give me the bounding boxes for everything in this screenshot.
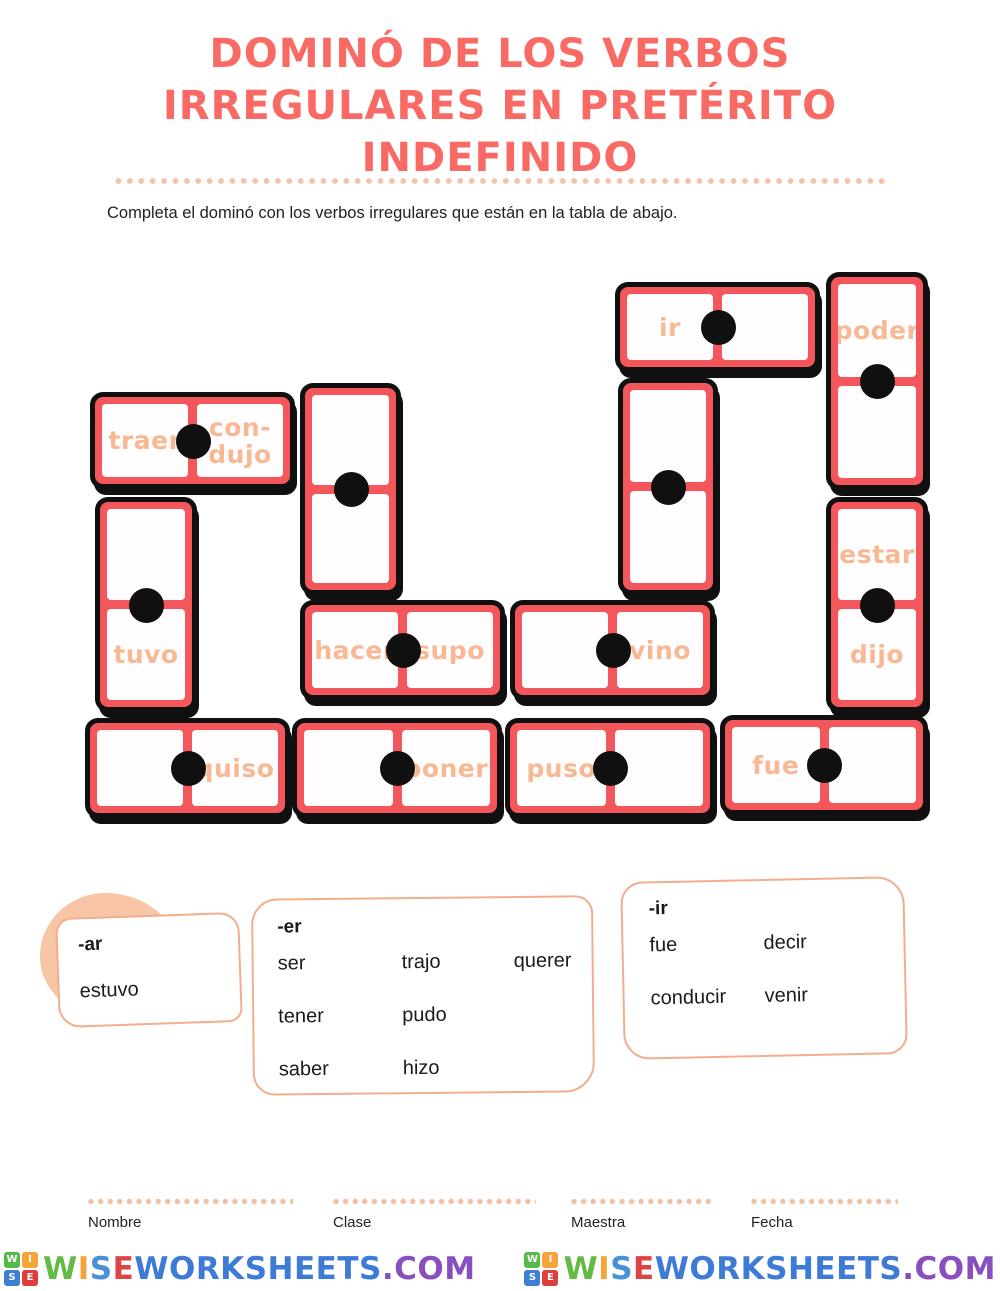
- bank-label: -er: [277, 913, 567, 938]
- domino-verb: supo: [415, 637, 485, 664]
- domino-pip: [176, 424, 211, 459]
- brand-letter-segment: WORKSHEETS: [655, 1251, 903, 1287]
- domino-verb: dijo: [850, 641, 904, 668]
- word-bank-word: conducir: [650, 985, 764, 1010]
- brand-grid-cell: S: [524, 1270, 540, 1286]
- bank-label: -ir: [649, 894, 877, 921]
- word-bank-word: saber: [279, 1057, 403, 1081]
- word-bank-word: venir: [764, 983, 878, 1008]
- page-title-line: DOMINÓ DE LOS VERBOS: [0, 28, 1000, 80]
- brand-grid-cell: E: [542, 1270, 558, 1286]
- domino-verb: quiso: [196, 755, 275, 782]
- domino-pip: [380, 751, 415, 786]
- answer-slot[interactable]: [630, 491, 706, 583]
- domino-verb: poner: [403, 755, 488, 782]
- field-label: Nombre: [88, 1214, 293, 1231]
- domino-half-verb: dijo: [838, 609, 916, 700]
- dotted-line: [333, 1198, 536, 1205]
- word-bank-word: estuvo: [79, 976, 220, 1004]
- field-label: Clase: [333, 1214, 536, 1231]
- domino-half-verb: tuvo: [107, 609, 185, 700]
- word-bank-spacer: [514, 1002, 572, 1026]
- word-bank-word: ser: [278, 951, 402, 975]
- footer-logo-row: WISEWISEWORKSHEETS.COM WISEWISEWORKSHEET…: [0, 1246, 1000, 1291]
- word-bank-er: -er ser trajo querer tener pudo saber hi…: [251, 895, 595, 1096]
- domino-verb: fue: [752, 752, 799, 779]
- brand-letter-segment: W: [563, 1251, 598, 1287]
- domino-poder-blank: poder: [826, 272, 928, 490]
- brand-grid-cell: S: [4, 1270, 20, 1286]
- word-bank-word: tener: [278, 1004, 402, 1028]
- brand-grid-cell: I: [22, 1252, 38, 1268]
- domino-verb: tuvo: [113, 641, 178, 668]
- answer-slot[interactable]: [630, 390, 706, 482]
- domino-puso-blank: puso: [505, 718, 715, 818]
- domino-blank-vino: vino: [510, 600, 715, 700]
- domino-blank-tuvo: tuvo: [95, 497, 197, 712]
- worksheet-page: DOMINÓ DE LOS VERBOS IRREGULARES EN PRET…: [0, 0, 1000, 1291]
- brand-logo: WISEWISEWORKSHEETS.COM: [4, 1251, 476, 1287]
- domino-pip: [807, 748, 842, 783]
- domino-verb: con- dujo: [208, 414, 271, 468]
- domino-pip: [596, 633, 631, 668]
- brand-letter-segment: WORKSHEETS: [134, 1251, 382, 1287]
- domino-traer-condujo: traer con- dujo: [90, 392, 295, 489]
- brand-letter-segment: S: [90, 1251, 113, 1287]
- domino-blank-poner: poner: [292, 718, 502, 818]
- brand-wordmark: WISEWORKSHEETS.COM: [563, 1251, 996, 1287]
- brand-letter-segment: .COM: [902, 1251, 996, 1287]
- domino-half-verb: estar: [838, 509, 916, 600]
- page-title-line: IRREGULARES EN PRETÉRITO: [0, 80, 1000, 132]
- brand-grid-icon: WISE: [4, 1252, 38, 1286]
- dotted-line: [88, 1198, 293, 1205]
- domino-pip: [860, 588, 895, 623]
- brand-letter-segment: I: [598, 1251, 610, 1287]
- brand-letter-segment: E: [113, 1251, 135, 1287]
- word-bank-ar: -ar estuvo: [55, 912, 243, 1028]
- domino-pip: [593, 751, 628, 786]
- bank-label: -ar: [78, 930, 219, 957]
- domino-fue-blank: fue: [720, 715, 928, 815]
- domino-pip: [701, 310, 736, 345]
- brand-letter-segment: I: [78, 1251, 90, 1287]
- domino-pip: [171, 751, 206, 786]
- word-bank-word: hizo: [403, 1056, 515, 1080]
- domino-half-verb: poder: [838, 284, 916, 377]
- domino-verb: puso: [526, 755, 596, 782]
- field-maestra: Maestra: [571, 1198, 713, 1231]
- word-bank-word: querer: [514, 949, 572, 973]
- brand-wordmark: WISEWORKSHEETS.COM: [43, 1251, 476, 1287]
- word-bank-word: pudo: [402, 1003, 514, 1027]
- field-nombre: Nombre: [88, 1198, 293, 1231]
- word-bank-word: fue: [649, 932, 763, 957]
- brand-grid-icon: WISE: [524, 1252, 558, 1286]
- word-bank-grid: ser trajo querer tener pudo saber hizo: [278, 949, 569, 1081]
- brand-letter-segment: E: [633, 1251, 655, 1287]
- instruction-text: Completa el dominó con los verbos irregu…: [107, 204, 678, 223]
- domino-blank-blank-2: [618, 378, 718, 595]
- domino-pip: [129, 588, 164, 623]
- word-bank-spacer: [515, 1055, 573, 1079]
- page-title: DOMINÓ DE LOS VERBOS IRREGULARES EN PRET…: [0, 28, 1000, 184]
- word-bank-word: trajo: [402, 950, 514, 974]
- domino-pip: [860, 364, 895, 399]
- domino-pip: [334, 472, 369, 507]
- brand-logo: WISEWISEWORKSHEETS.COM: [524, 1251, 996, 1287]
- domino-blank-blank-1: [300, 383, 401, 595]
- brand-grid-cell: W: [524, 1252, 540, 1268]
- brand-grid-cell: I: [542, 1252, 558, 1268]
- domino-verb: traer: [109, 427, 182, 454]
- dotted-divider: [115, 177, 885, 185]
- brand-letter-segment: .COM: [382, 1251, 476, 1287]
- domino-hacer-supo: hacer supo: [300, 600, 505, 700]
- answer-slot[interactable]: [107, 509, 185, 600]
- word-bank-grid: fue decir conducir venir: [649, 930, 879, 1011]
- domino-blank-quiso: quiso: [85, 718, 290, 818]
- brand-grid-cell: W: [4, 1252, 20, 1268]
- field-fecha: Fecha: [751, 1198, 898, 1231]
- brand-letter-segment: W: [43, 1251, 78, 1287]
- domino-verb: vino: [629, 637, 691, 664]
- domino-verb: hacer: [314, 637, 395, 664]
- answer-slot[interactable]: [838, 386, 916, 479]
- domino-verb: estar: [839, 541, 915, 568]
- domino-verb: ir: [659, 314, 681, 341]
- brand-letter-segment: S: [610, 1251, 633, 1287]
- domino-estar-dijo: estar dijo: [826, 497, 928, 712]
- field-label: Maestra: [571, 1214, 713, 1231]
- field-clase: Clase: [333, 1198, 536, 1231]
- domino-verb: poder: [838, 317, 916, 344]
- domino-ir-blank: ir: [615, 282, 820, 372]
- dotted-line: [571, 1198, 713, 1205]
- field-label: Fecha: [751, 1214, 898, 1231]
- word-bank-ir: -ir fue decir conducir venir: [620, 876, 908, 1060]
- brand-grid-cell: E: [22, 1270, 38, 1286]
- dotted-line: [751, 1198, 898, 1205]
- domino-pip: [651, 470, 686, 505]
- word-bank-word: decir: [763, 930, 877, 955]
- domino-pip: [386, 633, 421, 668]
